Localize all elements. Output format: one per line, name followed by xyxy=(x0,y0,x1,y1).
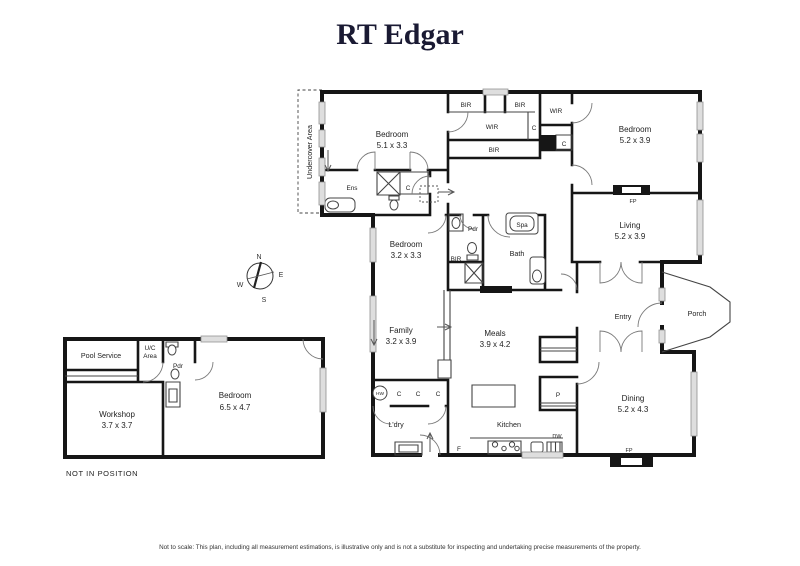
room-label-porch: Porch xyxy=(688,309,707,318)
room-label-dining: Dining xyxy=(622,394,645,403)
label-cupboard-2: C xyxy=(416,391,421,398)
label-pantry: P xyxy=(556,392,560,399)
bath-basin-icon xyxy=(533,270,542,282)
room-dims-meals: 3.9 x 4.2 xyxy=(480,340,511,349)
compass-needle xyxy=(254,262,261,288)
label-fridge: F xyxy=(457,446,461,453)
outbuilding-basin-icon xyxy=(171,369,179,379)
cooktop-burner-icon xyxy=(502,446,506,450)
room-label-entry: Entry xyxy=(615,312,632,321)
room-label-pool-service: Pool Service xyxy=(81,351,121,360)
label-wir-1: WIR xyxy=(486,124,499,131)
room-dims-workshop: 3.7 x 3.7 xyxy=(102,421,133,430)
room-dims-bedroom1: 5.1 x 3.3 xyxy=(377,141,408,150)
room-label-bath: Bath xyxy=(510,249,525,258)
room-label-living: Living xyxy=(620,221,641,230)
room-label-laundry: L'dry xyxy=(388,420,404,429)
cooktop-burner-icon xyxy=(515,446,519,450)
ensuite-toilet-icon xyxy=(390,200,398,210)
label-bir-1: BIR xyxy=(461,102,472,109)
room-dims-bedroom2: 5.2 x 3.9 xyxy=(620,136,651,145)
room-label-ensuite: Ens xyxy=(346,185,357,192)
label-cupboard-1: C xyxy=(397,391,402,398)
outbuilding-toilet-icon xyxy=(168,345,176,355)
outbuilding-windows xyxy=(201,336,326,412)
room-label-family: Family xyxy=(389,326,413,335)
cooktop-burner-icon xyxy=(509,442,514,447)
ensuite-basin-icon xyxy=(328,201,339,209)
room-label-meals: Meals xyxy=(484,329,505,338)
label-bir-4: BIR xyxy=(451,256,462,263)
powder-basin-icon xyxy=(452,218,460,229)
room-label-powder-outbuilding: Pdr xyxy=(173,363,184,370)
room-label-workshop: Workshop xyxy=(99,410,135,419)
label-cupboard-3: C xyxy=(436,391,441,398)
label-spa: Spa xyxy=(516,222,528,229)
room-dims-living: 5.2 x 3.9 xyxy=(615,232,646,241)
undercover-area-label: Undercover Area xyxy=(305,125,314,179)
label-bir-3: BIR xyxy=(489,147,500,154)
label-cupboard-ensuite: C xyxy=(406,185,411,192)
compass-crossline xyxy=(247,272,274,279)
cabinetry-lines xyxy=(377,112,577,455)
door-swings xyxy=(357,103,662,455)
label-bir-2: BIR xyxy=(515,102,526,109)
room-label-uc-area-line2: Area xyxy=(143,353,157,360)
room-label-bedroom2: Bedroom xyxy=(619,125,652,134)
room-label-bedroom-outbuilding: Bedroom xyxy=(219,391,252,400)
label-wir-2: WIR xyxy=(550,108,563,115)
floorplan-svg: RT Edgar N E W S Undercover Area xyxy=(0,0,800,566)
label-dishwasher: DW xyxy=(552,434,562,440)
compass-east: E xyxy=(279,272,284,279)
compass-south: S xyxy=(262,297,267,304)
powder-toilet-icon xyxy=(468,243,477,254)
room-label-bedroom1: Bedroom xyxy=(376,130,409,139)
floorplan-page: RT Edgar N E W S Undercover Area xyxy=(0,0,800,566)
disclaimer-text: Not to scale: This plan, including all m… xyxy=(159,544,641,551)
room-dims-bedroom3: 3.2 x 3.3 xyxy=(391,251,422,260)
compass-rose: N E W S xyxy=(237,254,284,304)
room-label-uc-area-line1: U/C xyxy=(144,345,155,352)
room-label-bedroom3: Bedroom xyxy=(390,240,423,249)
label-fireplace-dining: FP xyxy=(625,448,632,454)
label-cupboard-right: C xyxy=(562,141,567,148)
outbuilding: Pool Service U/C Area Pdr Workshop 3.7 x… xyxy=(65,336,326,478)
kitchen-sink-icon xyxy=(531,442,543,452)
room-label-powder: Pdr xyxy=(468,226,479,233)
brand-logo: RT Edgar xyxy=(336,18,464,51)
room-dims-dining: 5.2 x 4.3 xyxy=(618,405,649,414)
label-fireplace-living: FP xyxy=(629,199,636,205)
compass-north: N xyxy=(256,254,261,261)
room-label-kitchen: Kitchen xyxy=(497,420,521,429)
room-dims-bedroom-outbuilding: 6.5 x 4.7 xyxy=(220,403,251,412)
label-cupboard-wir: C xyxy=(532,125,537,132)
cooktop-burner-icon xyxy=(492,442,497,447)
label-hot-water: HW xyxy=(376,391,384,397)
solid-wall-fills xyxy=(480,135,653,467)
not-in-position-note: NOT IN POSITION xyxy=(66,469,138,478)
compass-west: W xyxy=(237,282,244,289)
main-house: Undercover Area xyxy=(298,89,730,467)
room-dims-family: 3.2 x 3.9 xyxy=(386,337,417,346)
